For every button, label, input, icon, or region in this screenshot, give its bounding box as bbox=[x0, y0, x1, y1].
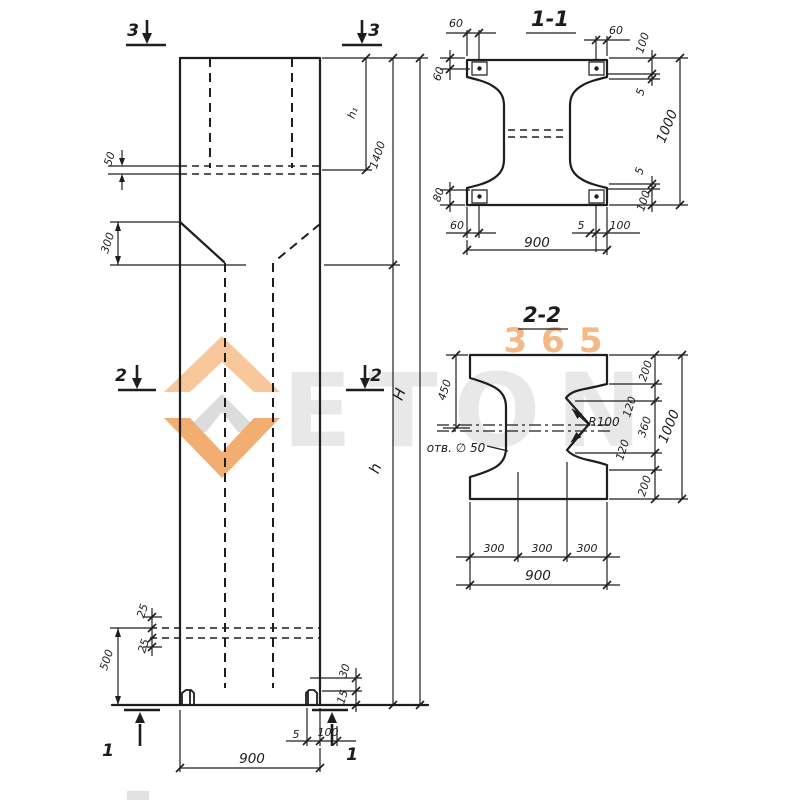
dim-foot-gap: 5 bbox=[293, 728, 300, 741]
section-mark-3-right-label: 3 bbox=[368, 21, 380, 41]
s22-dim-height: 1000 bbox=[655, 408, 683, 446]
s11-dim-left-top: 60 bbox=[430, 65, 447, 82]
dim-pocket-depth: h₁ bbox=[345, 105, 361, 120]
s11-dim-bottom-right-100: 100 bbox=[610, 219, 631, 232]
s22-dim-width: 900 bbox=[525, 568, 551, 584]
s22-hole-label: отв. ∅ 50 bbox=[427, 441, 486, 455]
tip-hidden-lines bbox=[150, 628, 320, 638]
s22-radius-label: R100 bbox=[588, 415, 620, 429]
taper-left-edge bbox=[180, 222, 224, 262]
section-2-2-title: 2-2 bbox=[523, 303, 561, 327]
s11-dim-right-top-lines bbox=[606, 50, 688, 86]
taper-right-hidden bbox=[274, 224, 320, 262]
dim-pocket-wall: 50 bbox=[101, 150, 118, 167]
dim-head-length: 1400 bbox=[367, 140, 388, 171]
s11-dim-top-right: 60 bbox=[609, 24, 623, 37]
section-mark-1-right-label: 1 bbox=[346, 745, 358, 765]
section-mark-2-left: 2 bbox=[115, 365, 156, 390]
s11-dim-bottom-left: 60 bbox=[450, 219, 464, 232]
dim-group-tip: 25 25 500 bbox=[97, 602, 162, 705]
drawing-canvas: ETON 365 h₁ 1400 H h 50 bbox=[0, 0, 800, 800]
s22-dim-edge-bottom: 200 bbox=[635, 474, 654, 498]
dim-tip-length: 500 bbox=[97, 648, 116, 672]
s11-dim-bottom-right-5: 5 bbox=[578, 219, 585, 232]
s11-dim-top-left: 60 bbox=[449, 17, 463, 30]
section-1-1: 1-1 60 60 60 80 100 5 5 100 bbox=[430, 7, 688, 255]
dim-foot-height: 30 bbox=[336, 662, 353, 679]
rebar-dot-br bbox=[594, 194, 598, 198]
rebar-dot-tl bbox=[477, 66, 481, 70]
dim-taper: 300 bbox=[98, 231, 117, 255]
watermark-diamond-top-chevron bbox=[164, 336, 280, 392]
section-1-1-title: 1-1 bbox=[531, 7, 569, 31]
section-mark-1-left: 1 bbox=[102, 710, 160, 761]
dim-width: 900 bbox=[239, 751, 265, 767]
section-mark-1-left-label: 1 bbox=[102, 741, 114, 761]
section-1-1-hole-axis bbox=[508, 130, 566, 137]
s22-dim-300-1: 300 bbox=[484, 542, 505, 555]
cut-off-table-edge bbox=[127, 791, 149, 800]
pocket-hidden-lines bbox=[210, 58, 292, 168]
s11-dim-right-top-100: 100 bbox=[633, 31, 652, 55]
rebar-dot-bl bbox=[477, 194, 481, 198]
section-mark-3-left: 3 bbox=[126, 20, 166, 45]
s11-dim-right-bottom-100: 100 bbox=[634, 189, 653, 213]
section-mark-2-right-label: 2 bbox=[370, 366, 382, 386]
drawing-sheet: ETON 365 h₁ 1400 H h 50 bbox=[0, 0, 800, 800]
column-feet bbox=[182, 690, 317, 705]
dim-group-taper: 300 bbox=[98, 222, 246, 265]
s11-dim-left-bottom: 80 bbox=[430, 186, 447, 203]
s11-dim-width: 900 bbox=[524, 235, 550, 251]
dim-foot-width: 100 bbox=[318, 726, 339, 739]
section-mark-3-left-label: 3 bbox=[127, 21, 139, 41]
s11-dim-height: 1000 bbox=[653, 108, 681, 146]
s22-dim-300-3: 300 bbox=[577, 542, 598, 555]
watermark: ETON 365 bbox=[164, 321, 658, 478]
pocket-floor-lines bbox=[180, 166, 320, 174]
section-mark-2-left-label: 2 bbox=[115, 366, 127, 386]
s11-dim-right-bottom-5: 5 bbox=[632, 166, 647, 177]
shaft-hidden-lines bbox=[225, 263, 273, 688]
dim-group-pocket-wall: 50 bbox=[101, 150, 180, 190]
section-1-1-outline bbox=[467, 60, 607, 205]
s11-dim-right-top-5: 5 bbox=[633, 87, 648, 98]
section-mark-3-right: 3 bbox=[342, 20, 382, 45]
rebar-dot-tr bbox=[594, 66, 598, 70]
dim-group-foot-width: 5 100 bbox=[286, 708, 356, 746]
watermark-diamond-bottom-chevron bbox=[164, 418, 280, 478]
s22-dim-300-2: 300 bbox=[532, 542, 553, 555]
